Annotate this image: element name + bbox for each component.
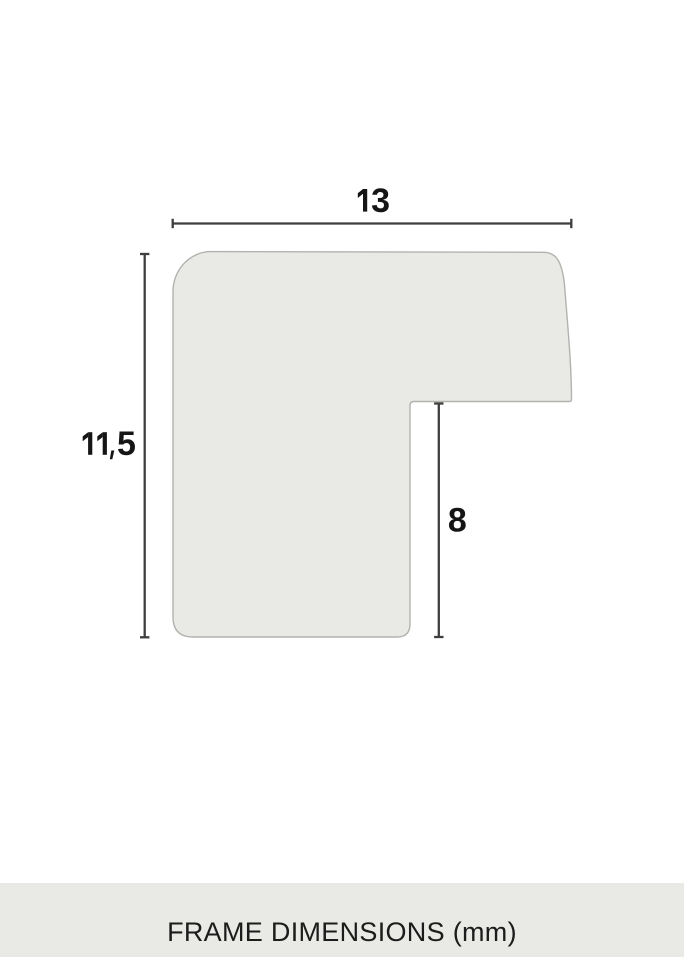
svg-text:8: 8 — [448, 502, 467, 540]
svg-text:5: 5 — [117, 425, 136, 463]
svg-text:3: 3 — [371, 182, 390, 220]
